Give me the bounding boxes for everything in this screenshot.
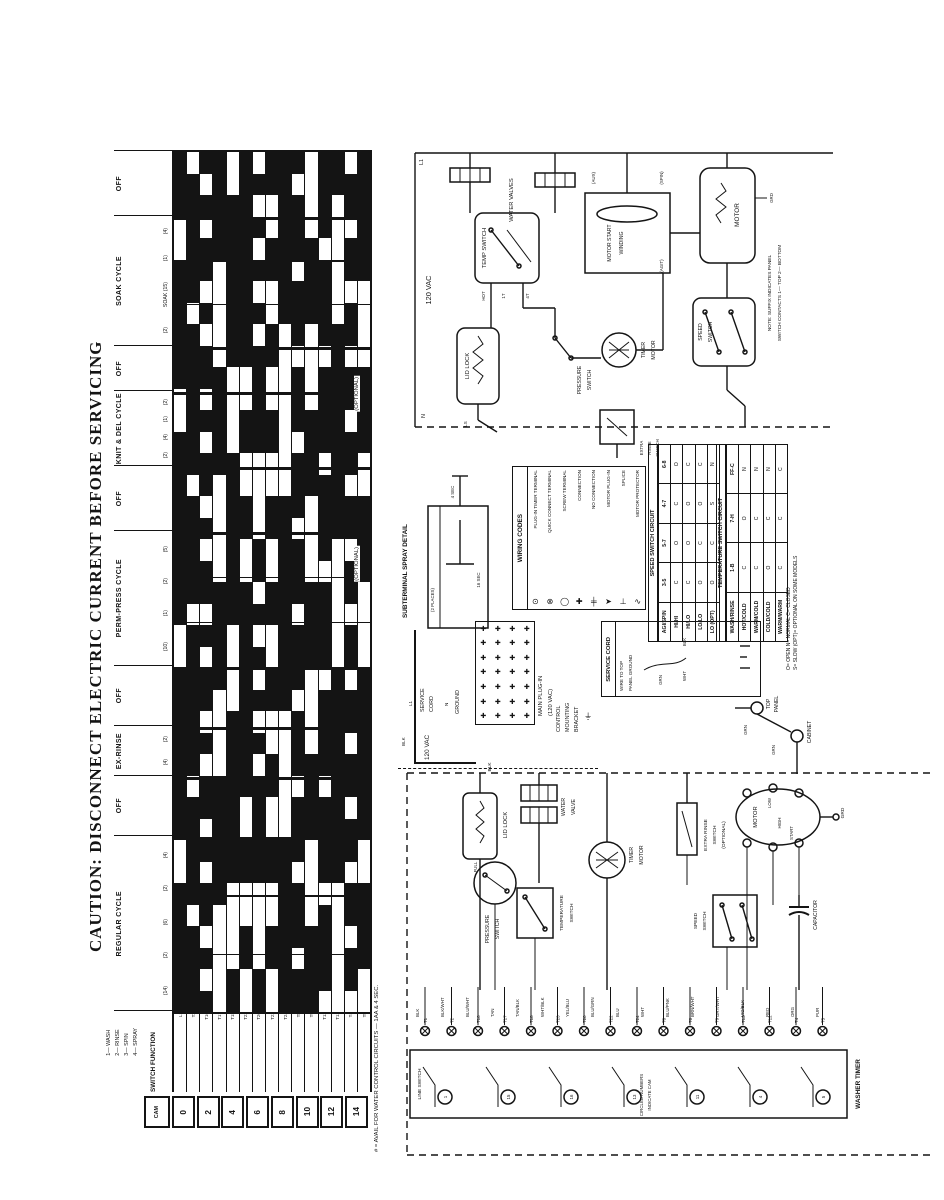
wiring-code-label: SPLICE	[621, 470, 626, 486]
table-cell: O	[671, 523, 683, 562]
timer-cam-track	[226, 152, 239, 1012]
blk-label: BLK	[487, 762, 493, 772]
temperature-switch-table: TEMPERATURE SWITCH CIRCUITWASH/RINSE1-B7…	[716, 444, 778, 642]
wiring-code-item: QUICK CONNECT TERMINAL⊗	[543, 467, 558, 609]
chassis-ground-icon: ⏚	[584, 710, 592, 722]
connector-pin: ✚	[495, 684, 501, 691]
cycle-mark: (2)	[163, 399, 169, 405]
timer-cam-contacts: 11516131145	[423, 1067, 830, 1107]
speed-switch-label: SPEED	[698, 323, 704, 341]
motor-label: MOTOR	[734, 203, 741, 227]
main-plug-in-connector: ✚✚✚✚✚✚✚✚✚✚✚✚✚✚✚✚✚✚✚✚✚✚✚✚✚✚✚✚	[475, 621, 535, 725]
timer-cam-track	[212, 152, 225, 1012]
cycle-mark: (1)	[163, 610, 169, 616]
wiring-code-item: MOTOR PLUG-IN➤	[601, 467, 616, 609]
optional-label: (OPTIONAL)	[354, 376, 360, 412]
timer-motor-label: TIMER	[629, 847, 635, 863]
table-col-header: 7-H	[727, 494, 739, 543]
track-wire-label: T20	[252, 1012, 265, 1092]
cam-number: 5	[821, 1095, 826, 1098]
pressure-switch-label: SWITCH	[587, 370, 593, 391]
cam-note: CIRCLED NUMBERS	[639, 1074, 644, 1117]
caution-caption: CAUTION: DISCONNECT ELECTRIC CURRENT BEF…	[86, 330, 106, 962]
connector-pin: ✚	[509, 626, 515, 633]
cycle-mark: (2)	[163, 578, 169, 584]
table-cell: C	[775, 494, 787, 543]
wiring-code-symbol: ➤	[605, 598, 612, 606]
speed-switch-table: SPEED SWITCH CIRCUITAGI/SPIN3-55-74-76-8…	[648, 444, 710, 642]
timer-cam-track	[265, 152, 278, 1012]
wire-color-label: BRN/WHT	[690, 996, 695, 1017]
speed-switch-circuit: SPEED SWITCH CIRCUITAGI/SPIN3-55-74-76-8…	[648, 444, 720, 642]
wiring-code-label: SCREW TERMINAL	[562, 470, 567, 512]
connector-pin: ✚	[480, 699, 486, 706]
table-cell: N	[739, 445, 751, 494]
panel-switch-note: NOTE: SUFFIX INDICATES PANEL	[767, 255, 773, 332]
spray-mark: 16 SEC	[476, 572, 481, 587]
capacitor-label: CAPACITOR	[813, 900, 819, 930]
motor-label: MOTOR	[753, 806, 759, 827]
extra-rinse-label: EXTRA RINSE	[703, 819, 709, 851]
bracket-label: MOUNTING	[565, 682, 571, 732]
wiring-code-symbol: ⊥	[620, 598, 627, 606]
motor-start-winding-label: WINDING	[619, 231, 625, 254]
upper-wiring-schematic: L1 N 120 VAC WATER VALVES TEMP SWITCH HO…	[405, 138, 845, 473]
terminal-number: T13	[741, 1015, 746, 1023]
temperature-switch-circuit-title: TEMPERATURE SWITCH CIRCUIT	[716, 444, 726, 642]
timer-cam-track	[318, 152, 331, 1012]
cam-note: INDICATE CAM	[647, 1079, 652, 1110]
wire-color-label: BLU	[615, 1008, 620, 1017]
timer-cam-track	[304, 152, 317, 1012]
legend-line: 1— WASH	[106, 1028, 112, 1056]
cycle-label: KNIT & DEL CYCLE	[116, 393, 123, 464]
table-cell: C	[739, 543, 751, 592]
timer-cam-track	[344, 152, 357, 1012]
cycle-marks: (4)(1)SOAK (15)(2)	[163, 218, 169, 344]
table-cell: C	[671, 484, 683, 523]
speed-switch-label: SWITCH	[702, 911, 708, 930]
wire-color-label: ORG	[790, 1006, 795, 1017]
washer-timer-label: WASHER TIMER	[855, 1059, 862, 1109]
connector-pin: ✚	[524, 669, 530, 676]
wire-color-label: BLU/PNK	[665, 998, 670, 1017]
wire-color-label: YEL/BLU	[565, 999, 570, 1017]
cam-number: 13	[632, 1094, 637, 1099]
line-switch-label: LS	[463, 421, 468, 426]
cycle-label: OFF	[116, 798, 123, 813]
cam-number-box: 6	[246, 1096, 269, 1128]
neutral-label: N	[421, 414, 427, 418]
terminal-1t-label: 1T	[501, 293, 506, 298]
connector-pin: ✚	[480, 626, 486, 633]
service-cord-pointer: SERVICE	[420, 666, 426, 712]
connector-pin: ✚	[495, 655, 501, 662]
table-cell: C	[775, 445, 787, 494]
cycle-band: OFF	[114, 465, 172, 531]
wire-note: PANEL GROUND	[628, 627, 633, 691]
contact-legend-line: S= SLOW (OPT)= OPTIONAL ON SOME MODELS	[793, 540, 800, 670]
timer-cam-track	[278, 152, 291, 1012]
scanned-wiring-diagram-page: CAUTION: DISCONNECT ELECTRIC CURRENT BEF…	[0, 0, 944, 1200]
cycle-marks: (2)(4)	[163, 728, 169, 774]
connector-pin: ✚	[509, 684, 515, 691]
spin-label: (SPIN)	[659, 171, 664, 185]
connector-pin: ✚	[495, 713, 501, 720]
speed-switch-circuit-title: SPEED SWITCH CIRCUIT	[648, 444, 658, 642]
wht-label: WHT	[682, 671, 687, 681]
timer-cam-track	[291, 152, 304, 1012]
connector-pin: ✚	[495, 669, 501, 676]
cam-number: 15	[506, 1094, 511, 1099]
wiring-code-item: NO CONNECTION╪	[587, 467, 602, 609]
cam-number-row: 02468101214	[172, 1096, 368, 1126]
motor-high-label: HIGH	[777, 818, 782, 829]
connector-pin: ✚	[524, 655, 530, 662]
cam-number-box: 10	[296, 1096, 319, 1128]
terminal-number: T2	[450, 1017, 455, 1023]
cycle-label: OFF	[116, 361, 123, 376]
table-cell: O	[683, 523, 695, 562]
cam-number-box: 4	[221, 1096, 244, 1128]
connector-pin: ✚	[524, 699, 530, 706]
table-cell: O	[763, 543, 775, 592]
connector-pin: ✚	[524, 684, 530, 691]
connector-pin: ✚	[509, 713, 515, 720]
table-col-header: FF-C	[727, 445, 739, 494]
wiring-code-label: QUICK CONNECT TERMINAL	[547, 470, 552, 533]
cycle-band: OFF	[114, 345, 172, 391]
table-cell: C	[683, 445, 695, 484]
wiring-code-symbol: ✚	[576, 598, 583, 606]
table-cell: N	[763, 445, 775, 494]
terminal-number: T17	[503, 1015, 508, 1023]
wiring-code-symbol: ◯	[560, 598, 569, 606]
track-wire-label: T24	[278, 1012, 291, 1092]
table-cell: C	[671, 563, 683, 602]
motor-low-label: LOW	[767, 797, 772, 808]
terminal-number: T5	[821, 1017, 826, 1023]
connector-pin: ✚	[495, 640, 501, 647]
optional-label: (OPTIONAL)	[354, 546, 360, 582]
wiring-code-item: MOTOR PROTECTOR∿	[630, 467, 645, 609]
cycle-rail: OFFSOAK CYCLE(4)(1)SOAK (15)(2)OFFKNIT &…	[114, 150, 172, 1011]
cycle-label: REGULAR CYCLE	[116, 891, 123, 956]
terminal-number: T16	[476, 1015, 481, 1023]
cycle-label: OFF	[116, 491, 123, 506]
wiring-code-label: PLUG-IN TIMER TERMINAL	[533, 470, 538, 529]
cam-header-box: CAM	[144, 1096, 170, 1128]
cycle-mark: (4)	[163, 434, 169, 440]
agit-label: (AGIT)	[659, 259, 664, 273]
table-cell: C	[751, 543, 763, 592]
cycle-mark: (4)	[163, 759, 169, 765]
ground-label: GRD	[840, 807, 846, 818]
connector-pin: ✚	[480, 713, 486, 720]
cycle-mark: (14)	[163, 986, 169, 995]
cycle-mark: (1)	[163, 255, 169, 261]
wire-color-labels: BLKBLK/WHTBLU/WHTTANTAN/BLKWHT/BLKYEL/BL…	[415, 996, 820, 1017]
wire-color-label: WHT/BLK	[540, 997, 545, 1017]
cycle-band: KNIT & DEL CYCLE(2)(1)(4)(2)	[114, 390, 172, 466]
lower-wiring-schematic: BLK LID LOCK FULL PRESSURE SWITCH WATER …	[395, 755, 944, 1175]
timer-motor-label: MOTOR	[639, 845, 645, 864]
chart-legend: 1— WASH2— RINSE3— SPIN4— SPRAY	[106, 1028, 139, 1056]
wire-color-label: WHT	[640, 1007, 645, 1017]
spray-mark: (2 PLACES)	[430, 588, 435, 612]
wiring-code-label: MOTOR PROTECTOR	[635, 470, 640, 517]
cycle-band: REGULAR CYCLE(4)(2)(6)(2)(14)	[114, 835, 172, 1011]
cam-number: 1	[443, 1095, 448, 1098]
wiring-code-symbol: ∿	[634, 598, 641, 606]
cam-number-box: 8	[271, 1096, 294, 1128]
timer-chart-tracks	[174, 152, 370, 1012]
track-wire-label: T23	[239, 1012, 252, 1092]
cycle-label: PERM-PRESS CYCLE	[116, 559, 123, 637]
cycle-band: PERM-PRESS CYCLE(5)(2)(1)(10)	[114, 530, 172, 666]
cycle-marks: (2)(1)(4)(2)	[163, 393, 169, 464]
wiring-code-symbol: ╪	[591, 598, 597, 606]
cycle-mark: (4)	[163, 228, 169, 234]
terminal-number: T24	[635, 1015, 640, 1023]
track-wire-label: T17	[212, 1012, 225, 1092]
cycle-mark: SOAK (15)	[163, 282, 169, 307]
table-cell: O	[739, 494, 751, 543]
table-cell: C	[751, 494, 763, 543]
line-switch-label: LINE SWITCH	[417, 1068, 423, 1099]
cycle-mark: (6)	[163, 919, 169, 925]
track-wire-label: T4	[344, 1012, 357, 1092]
table-row: COLD/COLDOCN	[763, 445, 775, 642]
cycle-mark: (1)	[163, 416, 169, 422]
wire-color-label: TAN	[490, 1009, 495, 1017]
timer-cam-track	[331, 152, 344, 1012]
aux-label: (AUX)	[591, 171, 596, 183]
table-row: LO/LOOCOC	[695, 445, 707, 642]
top-panel-label: TOP	[766, 698, 772, 709]
contact-legend: O= OPEN N= NORMAL C= CLOSEDS= SLOW (OPT)…	[786, 540, 812, 670]
connector-pin: ✚	[495, 699, 501, 706]
water-valve-label: WATER	[561, 798, 567, 816]
track-wire-label: T22	[265, 1012, 278, 1092]
legend-line: 3— SPIN	[124, 1028, 130, 1056]
track-wire-label: T18	[226, 1012, 239, 1092]
wiring-code-label: NO CONNECTION	[591, 470, 596, 509]
track-wire-label: T12	[331, 1012, 344, 1092]
connector-pin: ✚	[480, 684, 486, 691]
terminal-number: T20	[582, 1015, 587, 1023]
motor-start-label: START	[789, 826, 794, 840]
track-wire-label: T2	[186, 1012, 199, 1092]
wire-note: WIRE TO TOP	[619, 627, 624, 691]
terminal-number: T18	[529, 1015, 534, 1023]
voltage-label: 120 VAC	[424, 275, 433, 305]
bracket-label: BRACKET	[574, 682, 580, 732]
wire	[414, 630, 416, 762]
terminal-number: T23	[556, 1015, 561, 1023]
table-cell: O	[683, 484, 695, 523]
cycle-band: OFF	[114, 775, 172, 836]
table-col-header: 1-B	[727, 543, 739, 592]
table-col-header: 4-7	[659, 484, 671, 523]
table-row: HI/LOCOOC	[683, 445, 695, 642]
timer-cam-track	[252, 152, 265, 1012]
connector-pin: ✚	[509, 669, 515, 676]
cam-number: 11	[695, 1094, 700, 1099]
connector-pin: ✚	[524, 713, 530, 720]
cycle-label: SOAK CYCLE	[116, 256, 123, 306]
terminal-4t-label: 4T	[525, 293, 530, 298]
temperature-switch-label: TEMPERATURE	[559, 895, 565, 931]
neutral-label: N	[444, 688, 449, 706]
grn-label: GRN	[658, 675, 663, 685]
cycle-mark: (2)	[163, 885, 169, 891]
wiring-code-symbol: ⊙	[532, 598, 539, 606]
wire-color-label: TAN/BLK	[515, 999, 520, 1017]
cycle-mark: (2)	[163, 327, 169, 333]
extra-rinse-label: (OPTIONAL)	[721, 821, 727, 849]
cycle-mark: (10)	[163, 642, 169, 651]
cycle-mark: (4)	[163, 852, 169, 858]
cam-number: 16	[569, 1094, 574, 1099]
wiring-code-label: CONNECTION	[577, 470, 582, 501]
timer-track-labels: L1T2T16T17T18T23T20T22T24T8T9T13T12T4T5	[172, 1012, 372, 1092]
table-cell: O	[695, 563, 707, 602]
cycle-mark: (2)	[163, 452, 169, 458]
connector-pin: ✚	[509, 640, 515, 647]
cycle-marks: (4)(2)(6)(2)(14)	[163, 838, 169, 1009]
main-plug-in-label: MAIN PLUG-IN	[538, 648, 544, 716]
cam-number-box: 14	[345, 1096, 368, 1128]
table-cell: O	[695, 484, 707, 523]
legend-line: 4— SPRAY	[133, 1028, 139, 1056]
wire-color-label: PUR	[815, 1008, 820, 1017]
table-row: WARM/COLDCCN	[751, 445, 763, 642]
track-wire-label: T16	[199, 1012, 212, 1092]
terminal-number: T12	[768, 1015, 773, 1023]
table-cell: N	[751, 445, 763, 494]
service-cord-pointer: CORD	[429, 666, 435, 712]
cabinet-label: CABINET	[807, 720, 813, 743]
grn-label: GRN	[743, 725, 748, 735]
full-label: FULL	[473, 861, 478, 872]
terminal-number: T6	[688, 1017, 693, 1023]
table-col-header: 5-7	[659, 523, 671, 562]
wiring-code-label: MOTOR PLUG-IN	[606, 470, 611, 507]
terminal-number: T9	[715, 1017, 720, 1023]
cycle-marks: (5)(2)(1)(10)	[163, 533, 169, 664]
table-cell: C	[763, 494, 775, 543]
cycle-mark: (5)	[163, 546, 169, 552]
power-plug-drawing: BLK WHT GRN	[640, 624, 756, 692]
cycle-label: OFF	[116, 688, 123, 703]
timer-cam-track	[186, 152, 199, 1012]
wiring-codes-box: WIRING CODES PLUG-IN TIMER TERMINAL⊙QUIC…	[512, 466, 646, 610]
cycle-mark: (2)	[163, 736, 169, 742]
extra-rinse-label: SWITCH	[712, 825, 718, 844]
connector-pin: ✚	[524, 626, 530, 633]
table-cell: C	[695, 445, 707, 484]
cycle-band: OFF	[114, 150, 172, 216]
connector-pin: ✚	[524, 640, 530, 647]
ground-pointer: GROUND	[455, 664, 461, 714]
subterminal-spray-drawing: 4 SEC 16 SEC (2 PLACES)	[420, 468, 496, 640]
track-wire-label: T9	[304, 1012, 317, 1092]
cycle-label: OFF	[116, 176, 123, 191]
bracket-label: CONTROL	[556, 682, 562, 732]
wiring-code-item: SPLICE⊥	[616, 467, 631, 609]
timer-cam-track	[199, 152, 212, 1012]
cam-number: 4	[758, 1095, 763, 1098]
cycle-mark: (2)	[163, 952, 169, 958]
l1-label: L1	[408, 688, 413, 706]
service-cord-box: SERVICE CORD WIRE TO TOP PANEL GROUND BL…	[601, 621, 761, 697]
track-wire-label: T13	[318, 1012, 331, 1092]
temperature-switch-circuit: TEMPERATURE SWITCH CIRCUITWASH/RINSE1-B7…	[716, 444, 788, 642]
main-plug-in-label: (120 VAC)	[548, 648, 554, 716]
wiring-codes-title: WIRING CODES	[513, 467, 528, 609]
connector-pin: ✚	[480, 640, 486, 647]
water-valves-label: WATER VALVES	[509, 178, 515, 222]
cycle-band: SOAK CYCLE(4)(1)SOAK (15)(2)	[114, 215, 172, 346]
ground-label: GRD	[769, 193, 774, 203]
connector-pin: ✚	[509, 699, 515, 706]
connector-pin: ✚	[480, 669, 486, 676]
pressure-switch-label: PRESSURE	[577, 365, 583, 394]
terminal-number: T8	[662, 1017, 667, 1023]
chart-footnote: # = AVAIL FOR WATER CONTROL CIRCUITS — 1…	[374, 992, 380, 1152]
terminal-number: T4	[794, 1017, 799, 1023]
top-panel-label: PANEL	[774, 696, 780, 713]
connector-pin: ✚	[509, 655, 515, 662]
wire-color-label: GRY/WHT	[715, 996, 720, 1017]
timer-cam-track	[357, 152, 370, 1012]
wire-color-label: BLK/WHT	[440, 997, 445, 1017]
track-wire-label: T5	[357, 1012, 370, 1092]
grn-label: GRN	[771, 745, 776, 755]
blk-label: BLK	[682, 638, 687, 646]
table-col-header: 3-5	[659, 563, 671, 602]
wiring-code-item: PLUG-IN TIMER TERMINAL⊙	[528, 467, 543, 609]
track-wire-label: L1	[174, 1012, 186, 1092]
panel-switch-note: SWITCH CONTACTS 1— TOP 2— BOTTOM	[777, 245, 783, 342]
pressure-switch-label: SWITCH	[495, 919, 501, 940]
wire-color-label: BLU/WHT	[465, 997, 470, 1017]
terminal-number: T22	[609, 1015, 614, 1023]
lid-lock-label: LID LOCK	[465, 353, 471, 380]
lid-lock-label: LID LOCK	[503, 812, 509, 839]
l1-label: L1	[419, 159, 425, 165]
hot-label: HOT	[481, 291, 486, 301]
blk-label: BLK	[401, 726, 406, 746]
table-row: HOT/COLDCON	[739, 445, 751, 642]
table-row: HI/HICOCO	[671, 445, 683, 642]
timer-sequence-chart	[172, 150, 372, 1014]
cycle-label: EX-RINSE	[116, 733, 123, 769]
pressure-switch-label: PRESSURE	[485, 914, 491, 943]
table-row-header: COLD/COLD	[763, 592, 775, 641]
cam-number-box: 2	[197, 1096, 220, 1128]
subterminal-spray-detail-title: SUBTERMINAL SPRAY DETAIL	[402, 440, 409, 618]
wiring-code-item: CONNECTION✚	[572, 467, 587, 609]
timer-cam-track	[174, 152, 186, 1012]
speed-switch-label: SPEED	[693, 912, 699, 929]
connector-pin: ✚	[480, 655, 486, 662]
cam-number-box: 0	[172, 1096, 195, 1128]
terminal-number: T1	[423, 1017, 428, 1023]
spray-mark: 4 SEC	[450, 486, 455, 499]
wire-color-label: BLK	[415, 1009, 420, 1017]
